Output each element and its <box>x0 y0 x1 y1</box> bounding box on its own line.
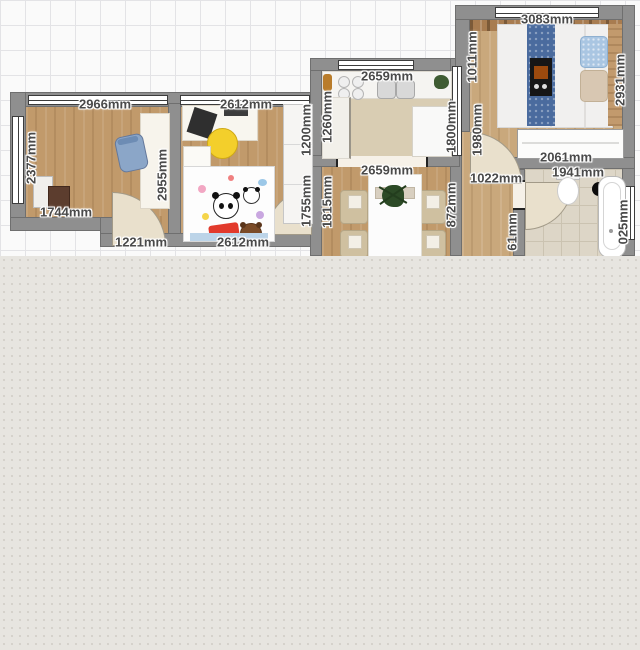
panda-face <box>213 193 239 219</box>
dimension-label: 2659mm <box>361 69 413 84</box>
bed-pillow-tan[interactable] <box>580 70 608 102</box>
toilet-bowl[interactable] <box>557 177 579 205</box>
dimension-label: 2931mm <box>613 54 628 106</box>
dimension-label: 1744mm <box>40 205 92 220</box>
dimension-label: 1800mm <box>444 101 459 153</box>
dimension-label: 2966mm <box>79 97 131 112</box>
kids-chair[interactable] <box>207 128 238 159</box>
dining-chair[interactable] <box>340 190 368 224</box>
kitchen-bottle[interactable] <box>323 74 332 91</box>
dimension-label: 2612mm <box>217 235 269 250</box>
dimension-label: 1941mm <box>552 165 604 180</box>
tv-on-bed[interactable] <box>530 58 552 96</box>
panda-ear <box>243 187 248 192</box>
dining-chair[interactable] <box>340 230 368 256</box>
kitchen-plant[interactable] <box>434 75 449 89</box>
dimension-label: 2955mm <box>155 149 170 201</box>
dimension-label: 2061mm <box>540 150 592 165</box>
dimension-label: 1022mm <box>470 171 522 186</box>
dimension-label: 2612mm <box>220 97 272 112</box>
canvas-background <box>0 256 640 650</box>
dimension-label: 025mm <box>616 200 631 245</box>
dimension-label: 1755mm <box>299 175 314 227</box>
dimension-label: 872mm <box>444 183 459 228</box>
dimension-label: 61mm <box>505 213 520 251</box>
floor-plan-canvas[interactable]: 2966mm 2612mm 2659mm 3083mm 2659mm 1744m… <box>0 0 640 256</box>
confetti <box>256 211 264 219</box>
dimension-label: 1260mm <box>320 91 335 143</box>
kids-bed[interactable] <box>183 166 275 242</box>
panda-eye <box>219 203 224 209</box>
chair-cushion <box>426 235 440 249</box>
chair-cushion <box>348 235 362 249</box>
dining-chair[interactable] <box>418 230 446 256</box>
dining-chair[interactable] <box>418 190 446 224</box>
confetti <box>198 185 206 193</box>
dimension-label: 1815mm <box>320 176 335 228</box>
confetti <box>202 213 209 220</box>
bed-pillow-blue[interactable] <box>580 36 608 68</box>
dimension-label: 3083mm <box>521 12 573 27</box>
dimension-label: 1221mm <box>115 235 167 250</box>
confetti <box>228 175 234 181</box>
panda-ear <box>212 192 219 199</box>
confetti <box>258 179 267 186</box>
teddy-ear <box>256 222 262 228</box>
office-window-left[interactable] <box>12 116 24 204</box>
dimension-label: 1200mm <box>299 104 314 156</box>
panda-ear <box>233 192 240 199</box>
stove-burner <box>338 76 350 88</box>
tv-button <box>542 84 547 89</box>
dimension-label: 2377mm <box>24 132 39 184</box>
teddy-ear <box>240 222 246 228</box>
chair-cushion <box>426 195 440 209</box>
wardrobe-rail <box>522 142 619 144</box>
dimension-label: 1011mm <box>465 31 480 82</box>
tv-button <box>534 84 539 89</box>
dimension-label: 2659mm <box>361 163 413 178</box>
panda-eye <box>228 203 233 209</box>
dimension-label: 1980mm <box>470 104 485 156</box>
panda-face-small <box>243 187 260 204</box>
stove-burner <box>352 88 364 100</box>
panda-ear <box>255 187 260 192</box>
dining-centerpiece-plant[interactable] <box>382 185 404 207</box>
office-chair-back <box>117 135 139 145</box>
tv-screen <box>534 66 548 79</box>
bathtub-drain <box>609 229 613 233</box>
chair-cushion <box>348 195 362 209</box>
kids-nightstand[interactable] <box>183 146 211 168</box>
